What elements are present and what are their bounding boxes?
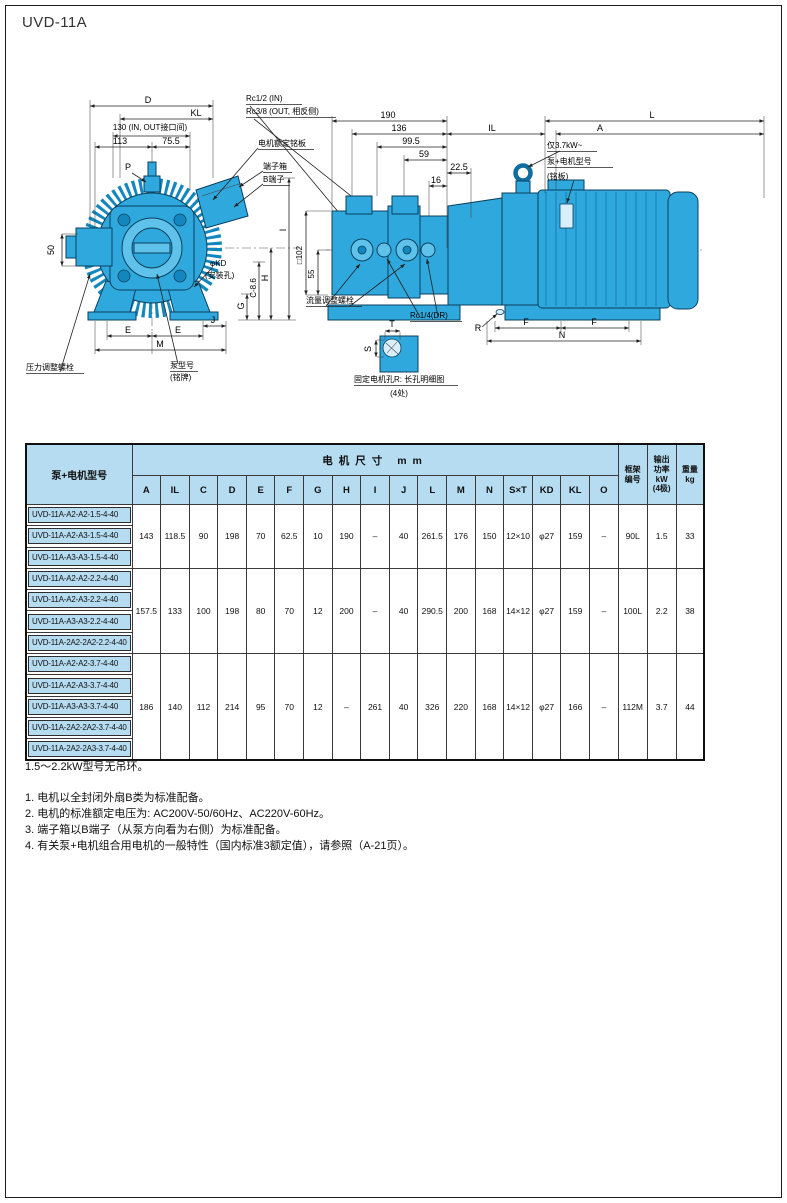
value-cell: 176 [447,505,476,569]
value-cell: 133 [161,568,190,653]
dim-136: 136 [391,123,406,133]
frame-cell: 100L [618,568,647,653]
foot-slot-hole [496,310,504,315]
dim-50: 50 [46,245,56,255]
label-pump-model: 泵型号 [170,361,194,370]
value-cell: 143 [132,505,161,569]
col-A: A [132,476,161,505]
value-cell: 190 [332,505,361,569]
label-P: P [125,162,131,172]
model-cell: UVD-11A-A2-A3-3.7-4-40 [26,675,132,696]
detail-dim-T: T [389,319,395,329]
label-rc12-in: Rc1/2 (IN) [246,94,283,103]
flange-bolt [118,270,130,282]
note-no-eyebolt: 1.5～2.2kW型号无吊环。 [25,760,414,776]
dim-E-left: E [125,325,131,335]
top-port-fitting [144,176,160,192]
model-cell: UVD-11A-A2-A2-1.5-4-40 [26,505,132,526]
dim-M: M [156,339,164,349]
motor-body-side [538,190,670,308]
model-cell: UVD-11A-2A2-2A2-2.2-4-40 [26,632,132,653]
catalog-page: UVD-11A [0,0,787,1203]
label-pressure-bolt: 压力调整螺栓 [26,362,74,372]
dim-L: L [649,110,654,120]
value-cell: 14×12 [504,568,533,653]
value-cell: 10 [304,505,333,569]
detail-dim-S: S [363,346,373,352]
value-cell: 40 [389,654,418,760]
value-cell: 220 [447,654,476,760]
dim-99-5: 99.5 [402,136,420,146]
frame-cell: 112M [618,654,647,760]
flow-screw-2 [421,243,435,257]
eyebolt-base [516,181,530,193]
label-pump-model-sub: (铭牌) [170,372,192,382]
flow-screw-1 [377,243,391,257]
value-cell: 100 [189,568,218,653]
value-cell: 40 [389,505,418,569]
label-unit-model: 泵+电机型号 [547,156,592,166]
dim-22-5: 22.5 [450,162,468,172]
col-D: D [218,476,247,505]
value-cell: 261 [361,654,390,760]
dim-D: D [145,95,152,105]
flange-bolt [174,270,186,282]
model-cell: UVD-11A-2A2-2A3-3.7-4-40 [26,739,132,760]
detail-caption: 固定电机孔R: 长孔明细图 [354,374,444,384]
value-cell: – [590,568,619,653]
value-cell: 214 [218,654,247,760]
note-4: 4. 有关泵+电机组合用电机的一般特性（国内标准3额定值），请参照（A-21页）… [25,839,414,855]
detail-caption-sub: (4处) [390,388,408,398]
dim-H: H [260,275,270,282]
dim-59: 59 [419,149,429,159]
col-O: O [590,476,619,505]
dim-75-5: 75.5 [162,136,180,146]
dim-E-right: E [175,325,181,335]
value-cell: 12×10 [504,505,533,569]
value-cell: φ27 [532,505,561,569]
model-cell: UVD-11A-A2-A2-2.2-4-40 [26,568,132,589]
model-cell: UVD-11A-A3-A3-2.2-4-40 [26,611,132,632]
value-cell: 159 [561,568,590,653]
weight-cell: 44 [676,654,704,760]
value-cell: 95 [246,654,275,760]
page-title: UVD-11A [22,14,87,31]
flange-bolt [118,214,130,226]
value-cell: 62.5 [275,505,304,569]
motor-flange [502,193,538,305]
value-cell: – [590,505,619,569]
pump-top-boss-2 [392,196,418,214]
value-cell: 198 [218,568,247,653]
value-cell: 90 [189,505,218,569]
value-cell: – [332,654,361,760]
value-cell: 150 [475,505,504,569]
dim-55: 55 [307,269,316,278]
dimension-table: 泵+电机型号 电机尺寸 mm 框架 编号 输出 功率 kW (4极) 重量 kg… [25,443,705,761]
col-C: C [189,476,218,505]
col-H: H [332,476,361,505]
value-cell: 290.5 [418,568,447,653]
flange-bolt [174,214,186,226]
note-2: 2. 电机的标准额定电压为: AC200V-50/60Hz、AC220V-60H… [25,807,414,823]
col-header-power: 输出 功率 kW (4极) [647,444,676,505]
fan-cover [668,192,698,309]
col-KD: KD [532,476,561,505]
col-G: G [304,476,333,505]
col-header-model: 泵+电机型号 [26,444,132,505]
value-cell: – [361,505,390,569]
mounting-bracket [448,198,502,305]
value-cell: 70 [246,505,275,569]
dim-IL: IL [488,123,496,133]
shaft-key-slot [134,243,170,253]
side-view-drawing: 190 136 99.5 59 22.5 16 L IL A 仅3.7kW~ 泵… [295,110,764,398]
value-cell: 326 [418,654,447,760]
value-cell: – [361,568,390,653]
frame-cell: 90L [618,505,647,569]
col-J: J [389,476,418,505]
dim-J: J [211,315,216,325]
value-cell: φ27 [532,568,561,653]
value-cell: φ27 [532,654,561,760]
model-cell: UVD-11A-A2-A2-3.7-4-40 [26,654,132,675]
dim-190: 190 [380,110,395,120]
value-cell: 198 [218,505,247,569]
label-motor-nameplate: 电机额定铭板 [258,138,306,148]
value-cell: 70 [275,654,304,760]
foot-pad-left [88,312,136,320]
value-cell: 166 [561,654,590,760]
weight-cell: 33 [676,505,704,569]
value-cell: 168 [475,654,504,760]
col-header-motor-dims: 电机尺寸 mm [132,444,618,476]
dim-16: 16 [431,175,441,185]
col-header-frame: 框架 编号 [618,444,647,505]
footnotes: 1.5～2.2kW型号无吊环。 1. 电机以全封闭外扇B类为标准配备。 2. 电… [25,760,414,855]
model-cell: UVD-11A-A3-A3-3.7-4-40 [26,696,132,717]
col-E: E [246,476,275,505]
dim-R: R [475,323,482,333]
col-header-weight: 重量 kg [676,444,704,505]
pump-port-1-center [358,246,366,254]
value-cell: 159 [561,505,590,569]
note-3: 3. 端子箱以B端子（从泵方向看为右侧）为标准配备。 [25,823,414,839]
value-cell: – [590,654,619,760]
value-cell: 200 [447,568,476,653]
pump-port-2-center [403,246,411,254]
value-cell: 40 [389,568,418,653]
power-cell: 1.5 [647,505,676,569]
value-cell: 118.5 [161,505,190,569]
unit-nameplate [560,204,573,228]
dim-I: I [278,229,288,232]
label-unit-model-sub: (铭板) [547,171,569,181]
label-KD: φKD [210,259,227,268]
value-cell: 168 [475,568,504,653]
value-cell: 80 [246,568,275,653]
dim-port-span: 130 (IN, OUT接口间) [113,122,188,132]
label-eye-note: 仅3.7kW~ [547,140,583,150]
dim-KL: KL [190,108,201,118]
technical-drawings: D KL 130 (IN, OUT接口间) 113 75.5 P 50 Rc1/… [0,78,787,413]
weight-cell: 38 [676,568,704,653]
value-cell: 14×12 [504,654,533,760]
value-cell: 12 [304,654,333,760]
model-cell: UVD-11A-A2-A3-2.2-4-40 [26,590,132,611]
dim-F-right: F [591,317,597,327]
dim-F-left: F [523,317,529,327]
col-M: M [447,476,476,505]
dim-sq102: □102 [295,245,304,264]
value-cell: 186 [132,654,161,760]
value-cell: 157.5 [132,568,161,653]
model-cell: UVD-11A-2A2-2A2-3.7-4-40 [26,717,132,738]
label-KD-sub: (安装孔) [205,270,235,280]
col-KL: KL [561,476,590,505]
model-cell: UVD-11A-A2-A3-1.5-4-40 [26,526,132,547]
label-b-terminal: B端子 [263,174,284,184]
value-cell: 12 [304,568,333,653]
model-cell: UVD-11A-A3-A3-1.5-4-40 [26,547,132,568]
col-N: N [475,476,504,505]
slot-hole-detail: T S 固定电机孔R: 长孔明细图 (4处) [354,319,458,398]
value-cell: 112 [189,654,218,760]
side-port-stub [66,236,76,258]
label-rc14-dr: Rc1/4(DR) [410,311,448,320]
power-cell: 2.2 [647,568,676,653]
dim-G: G [236,302,246,309]
value-cell: 200 [332,568,361,653]
col-SxT: S×T [504,476,533,505]
value-cell: 70 [275,568,304,653]
label-terminal-box: 端子箱 [263,161,287,171]
col-IL: IL [161,476,190,505]
value-cell: 261.5 [418,505,447,569]
pump-top-boss-1 [346,196,372,214]
label-flow-bolt: 流量调整螺栓 [306,295,354,305]
dim-A: A [597,123,603,133]
dim-113: 113 [113,136,127,146]
dim-N: N [559,330,566,340]
col-F: F [275,476,304,505]
dim-C: C-8.6 [249,278,258,298]
eyebolt-ring [516,166,531,181]
power-cell: 3.7 [647,654,676,760]
col-L: L [418,476,447,505]
value-cell: 140 [161,654,190,760]
side-port-boss [76,228,112,266]
col-I: I [361,476,390,505]
note-1: 1. 电机以全封闭外扇B类为标准配备。 [25,791,414,807]
